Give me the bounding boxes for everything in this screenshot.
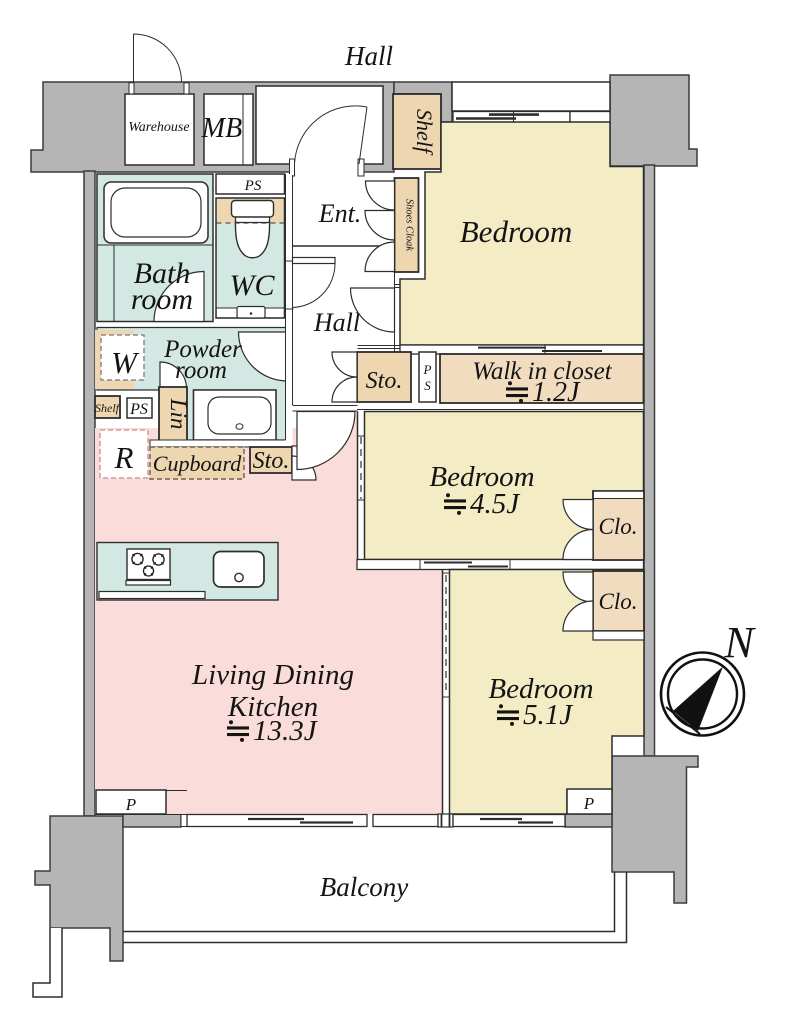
svg-text:Living Dining: Living Dining [191,659,354,691]
svg-text:Hall: Hall [344,41,393,71]
svg-text:Sto.: Sto. [366,368,403,394]
svg-text:Warehouse: Warehouse [128,120,189,135]
svg-text:W: W [111,345,140,380]
svg-text:MB: MB [201,113,242,144]
svg-text:5.1J: 5.1J [523,699,573,731]
svg-text:1.2J: 1.2J [532,377,581,408]
svg-text:Sto.: Sto. [253,448,290,474]
svg-text:PS: PS [244,178,262,194]
svg-text:Clo.: Clo. [599,514,638,539]
svg-text:WC: WC [230,269,276,302]
svg-text:Ent.: Ent. [318,199,362,228]
svg-text:room: room [175,357,227,384]
svg-text:N: N [723,618,756,667]
svg-text:Shoes Cloak: Shoes Cloak [404,199,415,252]
svg-text:Lin: Lin [166,398,191,430]
svg-text:P: P [125,795,136,814]
svg-text:PS: PS [129,401,148,418]
svg-text:Balcony: Balcony [320,872,408,902]
svg-text:Shelf: Shelf [95,401,121,415]
svg-text:13.3J: 13.3J [253,715,318,747]
svg-text:P: P [583,794,594,813]
svg-text:Bedroom: Bedroom [460,214,573,249]
svg-text:room: room [131,283,193,316]
svg-text:4.5J: 4.5J [470,488,520,520]
svg-text:Hall: Hall [313,308,360,337]
svg-text:Shelf: Shelf [412,109,437,156]
svg-text:R: R [114,440,134,475]
svg-text:Cupboard: Cupboard [153,451,242,476]
svg-text:S: S [424,378,431,393]
svg-text:Clo.: Clo. [599,589,638,614]
svg-text:P: P [423,362,432,377]
